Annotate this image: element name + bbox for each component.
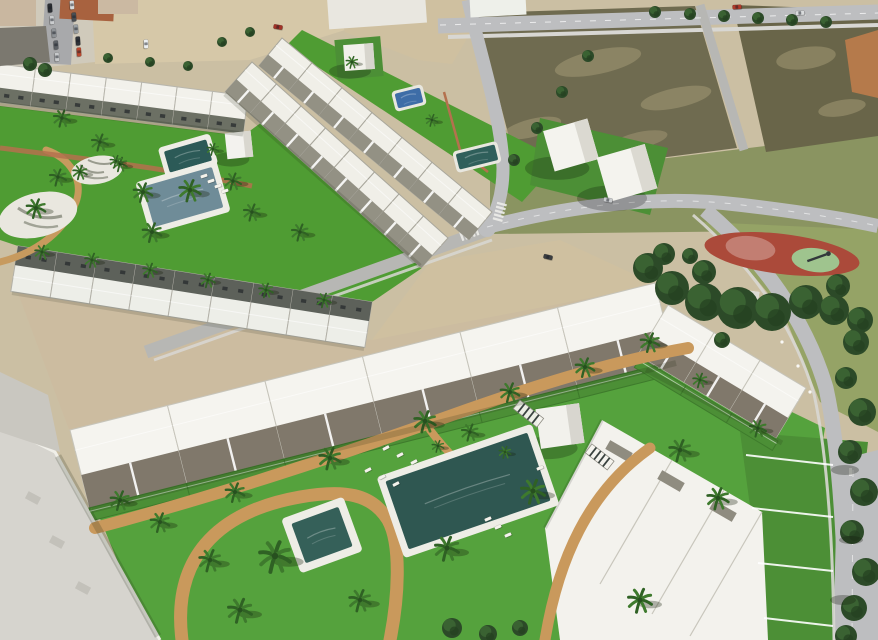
props-car-4 <box>54 52 60 62</box>
props-car-13 <box>795 10 805 16</box>
props-car-8 <box>75 36 81 46</box>
white-van <box>143 39 149 49</box>
aerial-render-screenshot <box>0 0 878 640</box>
town-block-3 <box>98 0 138 14</box>
red-truck <box>732 4 742 10</box>
props-car-7 <box>73 24 79 34</box>
props-car-9 <box>76 47 82 57</box>
aerial-render <box>0 0 878 640</box>
props-cir-22 <box>808 390 811 393</box>
props-car-0 <box>47 3 53 13</box>
shadows-ell-6 <box>831 465 859 475</box>
props-car-5 <box>69 0 75 10</box>
props-car-1 <box>49 15 55 25</box>
props-car-6 <box>71 12 77 22</box>
props-cir-20 <box>780 340 783 343</box>
shadows-ell-7 <box>839 536 863 544</box>
props-car-2 <box>51 28 57 38</box>
white-building-top <box>470 0 527 17</box>
props-car-3 <box>53 40 59 50</box>
props-cir-21 <box>796 364 799 367</box>
shadows-ell-8 <box>830 595 856 605</box>
town-block-1 <box>0 0 36 26</box>
